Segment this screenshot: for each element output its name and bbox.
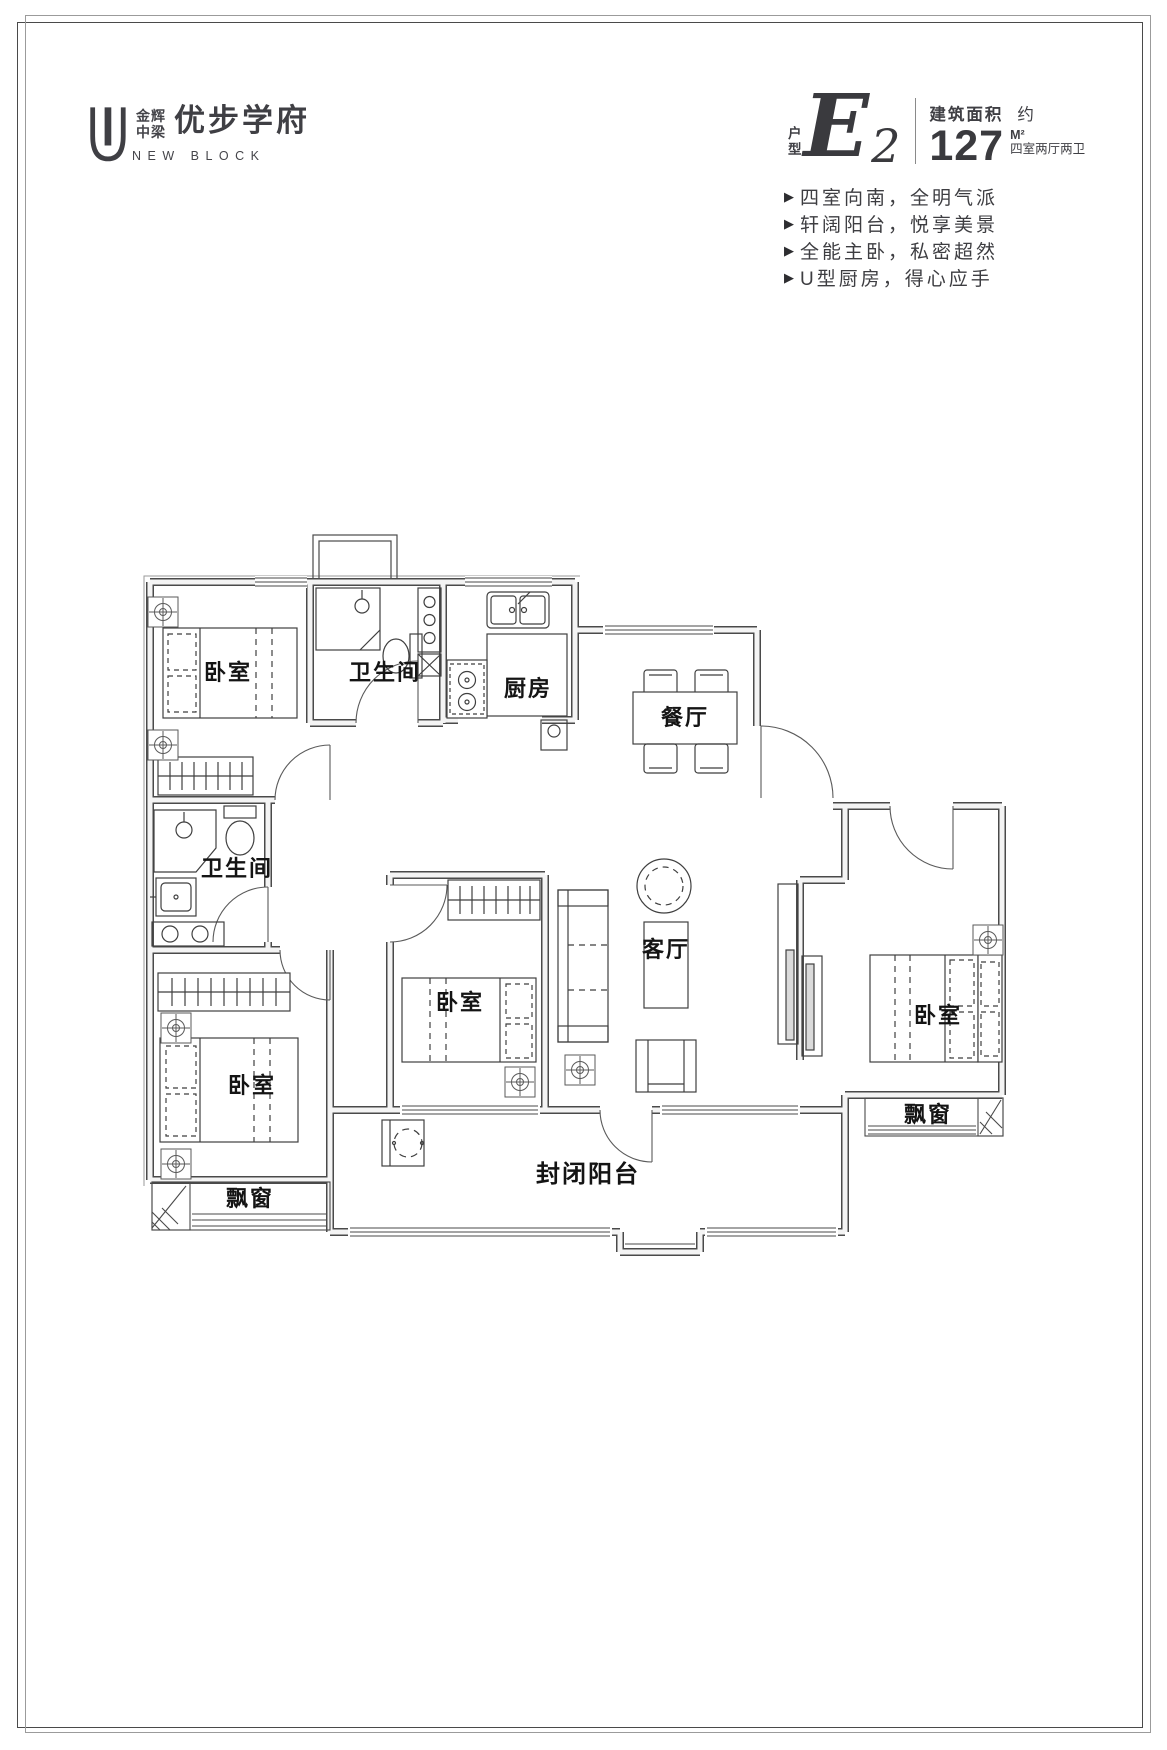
coffee-table-icon [644,922,688,1008]
window-icon [400,1104,540,1116]
column-marker-icon [148,597,178,627]
floorplan-sheet: { "page": { "background": "#ffffff", "fr… [0,0,1167,1750]
column-marker-icon [973,925,1003,955]
door-icon [890,806,953,869]
column-marker-icon [565,1055,595,1085]
room-label-bathroom-middle: 卫生间 [201,856,273,881]
window-icon [705,1226,838,1238]
kitchen-island-icon [487,634,567,716]
window-icon [348,1226,612,1238]
sofa-icon [558,890,608,1042]
room-label-dining: 餐厅 [661,705,709,730]
wardrobe-icon [158,757,253,795]
washing-machine-icon [382,1120,424,1166]
door-icon [275,745,330,800]
room-label-bedroom-right: 卧室 [914,1003,962,1028]
column-marker-icon [148,730,178,760]
nightstand-icon [978,955,1002,1062]
sink-icon [150,878,196,916]
column-marker-icon [505,1067,535,1097]
round-table-icon [637,859,691,913]
room-label-bay-window-right: 飘窗 [904,1102,952,1127]
room-label-bedroom-top-left: 卧室 [204,660,252,685]
water-heater-icon [541,720,567,750]
window-icon [603,624,714,636]
floorplan-drawing: 卧室 卫生间 厨房 餐厅 卫生间 客厅 卧室 卧室 卧室 飘窗 封闭阳台 飘窗 [0,0,1167,1750]
kitchen-sink-icon [487,592,549,628]
stove-icon [447,660,487,718]
column-marker-icon [161,1149,191,1179]
room-label-balcony: 封闭阳台 [536,1160,640,1188]
door-icon [390,885,447,942]
duct-box [313,535,397,582]
hatch-icon [152,1208,178,1230]
toilet-icon [224,806,256,855]
wardrobe-icon [448,880,540,920]
window-icon [255,576,307,588]
door-icon [600,1110,652,1162]
entry-door-icon [761,726,833,798]
room-label-bedroom-bottom-left: 卧室 [228,1073,276,1098]
armchair-icon [636,1040,696,1092]
room-label-kitchen: 厨房 [504,676,552,701]
shower-icon [316,588,380,650]
room-label-living: 客厅 [642,937,690,962]
room-label-bay-window-left: 飘窗 [226,1186,274,1211]
window-icon [660,1104,800,1116]
wardrobe-icon [158,973,290,1011]
room-label-bedroom-middle: 卧室 [436,990,484,1015]
room-label-bathroom-top: 卫生间 [349,660,421,685]
window-icon [465,576,552,588]
door-icon [213,887,268,942]
column-marker-icon [161,1013,191,1043]
